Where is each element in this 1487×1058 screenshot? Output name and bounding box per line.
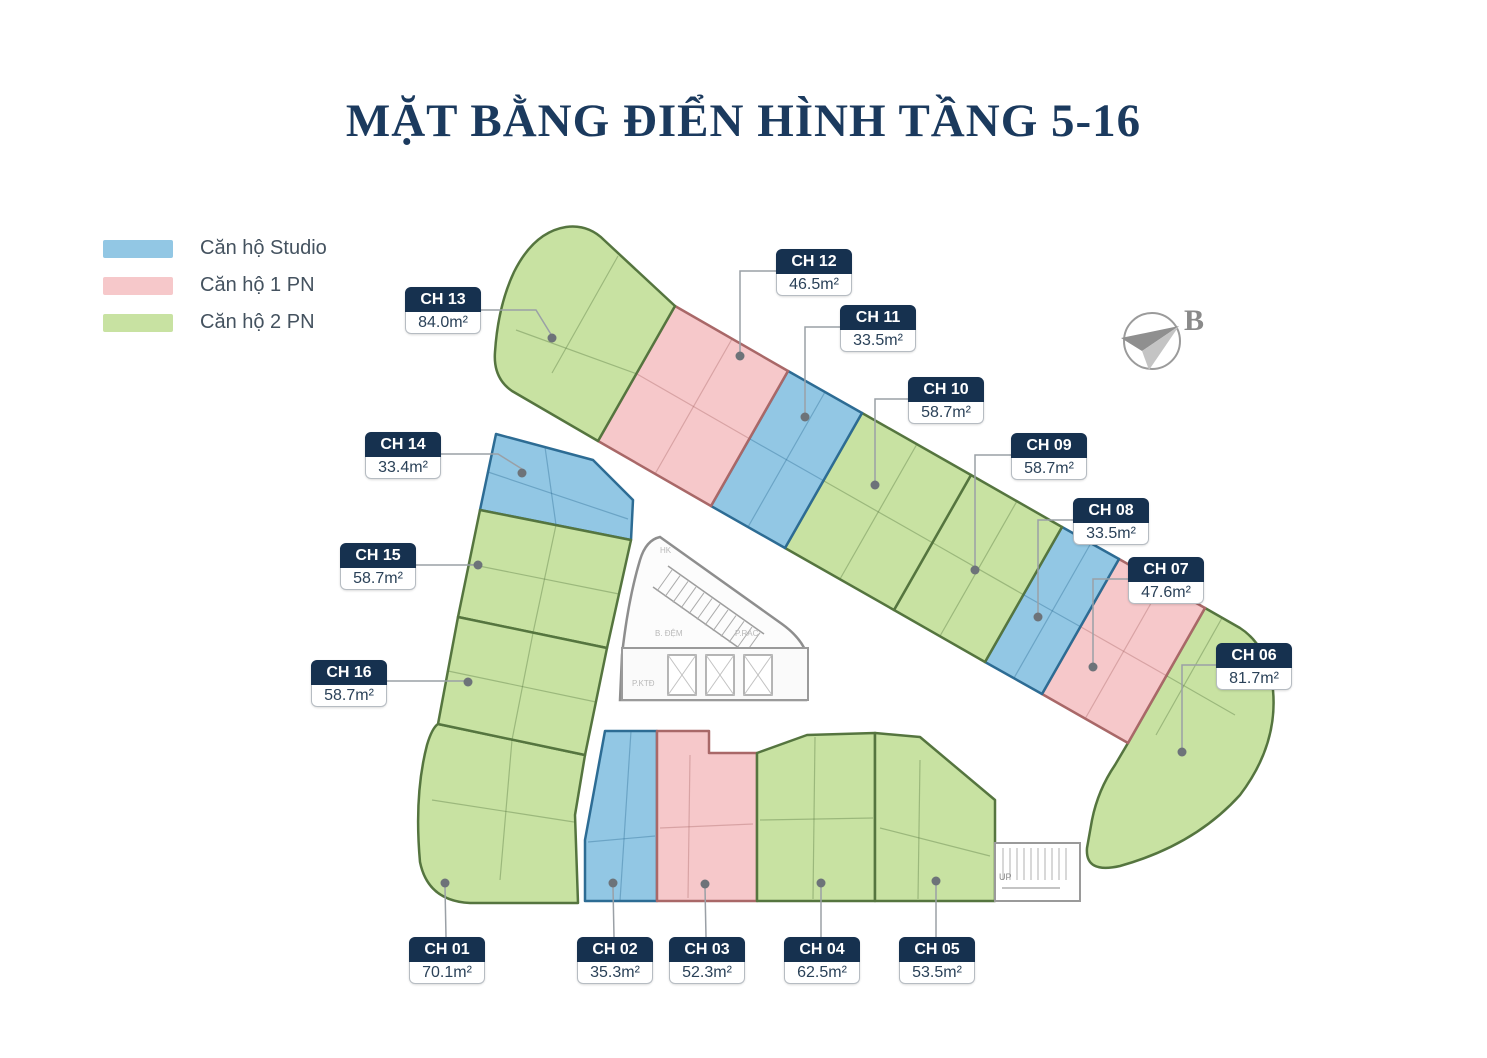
unit-label-ch15: CH 1558.7m² [340,543,416,590]
unit-name: CH 08 [1073,498,1149,523]
unit-name: CH 06 [1216,643,1292,668]
unit-area: 46.5m² [776,274,852,296]
leader-dot-ch08 [1034,613,1043,622]
unit-area: 84.0m² [405,312,481,334]
unit-area: 35.3m² [577,962,653,984]
leader-dot-ch05 [932,877,941,886]
leader-dot-ch04 [817,879,826,888]
unit-area: 33.5m² [840,330,916,352]
unit-area: 58.7m² [1011,458,1087,480]
unit-name: CH 05 [899,937,975,962]
unit-label-ch14: CH 1433.4m² [365,432,441,479]
leader-dot-ch10 [871,481,880,490]
unit-label-ch10: CH 1058.7m² [908,377,984,424]
unit-label-ch13: CH 1384.0m² [405,287,481,334]
unit-name: CH 16 [311,660,387,685]
unit-area: 62.5m² [784,962,860,984]
unit-name: CH 01 [409,937,485,962]
core-room-label: B. ĐỆM [655,629,683,638]
leader-dot-ch07 [1089,663,1098,672]
unit-name: CH 07 [1128,557,1204,582]
unit-label-ch09: CH 0958.7m² [1011,433,1087,480]
unit-name: CH 14 [365,432,441,457]
up-label: UP [999,872,1012,882]
unit-label-ch04: CH 0462.5m² [784,937,860,984]
unit-name: CH 12 [776,249,852,274]
leader-dot-ch13 [548,334,557,343]
unit-area: 47.6m² [1128,582,1204,604]
unit-area: 52.3m² [669,962,745,984]
unit-area: 33.4m² [365,457,441,479]
unit-name: CH 13 [405,287,481,312]
unit-area: 58.7m² [311,685,387,707]
leader-dot-ch12 [736,352,745,361]
elevator-shaft [668,655,696,695]
leader-dot-ch16 [464,678,473,687]
unit-area: 70.1m² [409,962,485,984]
leader-dot-ch02 [609,879,618,888]
unit-label-ch01: CH 0170.1m² [409,937,485,984]
unit-name: CH 15 [340,543,416,568]
leader-dot-ch09 [971,566,980,575]
unit-region-ch02 [585,731,657,901]
unit-label-ch02: CH 0235.3m² [577,937,653,984]
leader-dot-ch01 [441,879,450,888]
leader-dot-ch15 [474,561,483,570]
unit-name: CH 02 [577,937,653,962]
leader-dot-ch03 [701,880,710,889]
north-compass: B [1121,304,1204,370]
central-core: HKB. ĐỆMP.RÁCP.KTĐ [620,537,808,700]
unit-area: 58.7m² [908,402,984,424]
unit-label-ch06: CH 0681.7m² [1216,643,1292,690]
unit-label-ch16: CH 1658.7m² [311,660,387,707]
leader-line-ch02 [613,887,614,937]
unit-region-ch05 [875,733,995,901]
stair-room: UP [995,843,1080,901]
unit-area: 81.7m² [1216,668,1292,690]
unit-label-ch11: CH 1133.5m² [840,305,916,352]
unit-label-ch03: CH 0352.3m² [669,937,745,984]
unit-name: CH 09 [1011,433,1087,458]
unit-label-ch12: CH 1246.5m² [776,249,852,296]
unit-name: CH 11 [840,305,916,330]
leader-line-ch01 [445,887,446,937]
unit-name: CH 10 [908,377,984,402]
unit-label-ch07: CH 0747.6m² [1128,557,1204,604]
leader-dot-ch14 [518,469,527,478]
unit-area: 53.5m² [899,962,975,984]
leader-line-ch12 [740,271,776,352]
unit-area: 58.7m² [340,568,416,590]
elevator-shaft [744,655,772,695]
leader-line-ch03 [705,888,706,937]
core-room-label: HK [660,546,672,555]
compass-north-label: B [1184,304,1204,337]
core-room-label: P.KTĐ [632,679,655,688]
unit-region-ch03 [657,731,757,901]
elevator-shaft [706,655,734,695]
unit-name: CH 04 [784,937,860,962]
unit-region-ch04 [757,733,875,901]
unit-label-ch05: CH 0553.5m² [899,937,975,984]
unit-label-ch08: CH 0833.5m² [1073,498,1149,545]
unit-area: 33.5m² [1073,523,1149,545]
floor-plan-drawing: HKB. ĐỆMP.RÁCP.KTĐ UP B [0,0,1487,1058]
floor-plan-page: MẶT BẰNG ĐIỂN HÌNH TẦNG 5-16 Căn hộ Stud… [0,0,1487,1058]
core-room-label: P.RÁC [735,629,759,638]
leader-dot-ch06 [1178,748,1187,757]
unit-name: CH 03 [669,937,745,962]
leader-dot-ch11 [801,413,810,422]
